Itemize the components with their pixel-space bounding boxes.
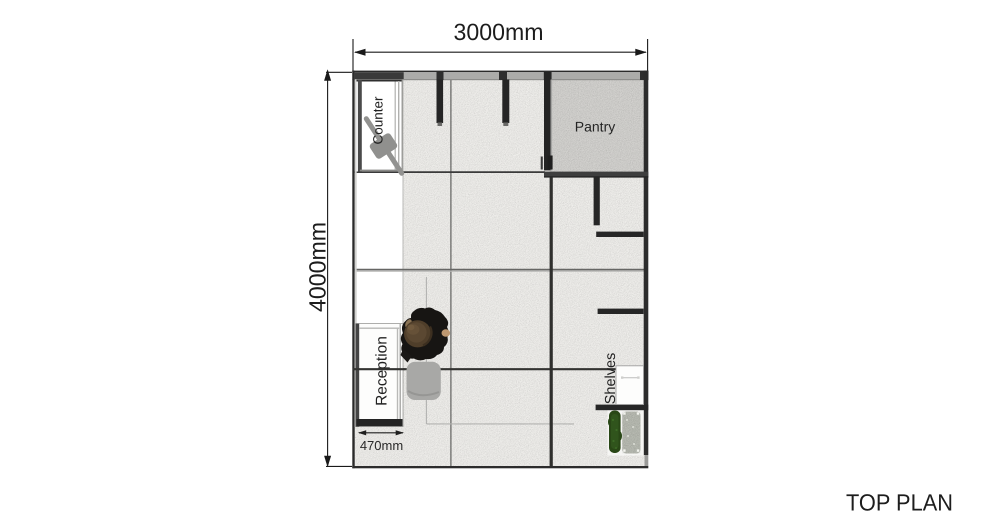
- svg-text:Pantry: Pantry: [575, 118, 615, 134]
- svg-text:TOP PLAN: TOP PLAN: [846, 490, 953, 516]
- svg-text:Reception: Reception: [374, 336, 391, 406]
- svg-text:Shelves: Shelves: [603, 353, 619, 405]
- svg-text:470mm: 470mm: [360, 438, 403, 453]
- svg-text:Counter: Counter: [371, 96, 386, 145]
- svg-text:4000mm: 4000mm: [304, 222, 330, 312]
- svg-text:3000mm: 3000mm: [454, 19, 544, 45]
